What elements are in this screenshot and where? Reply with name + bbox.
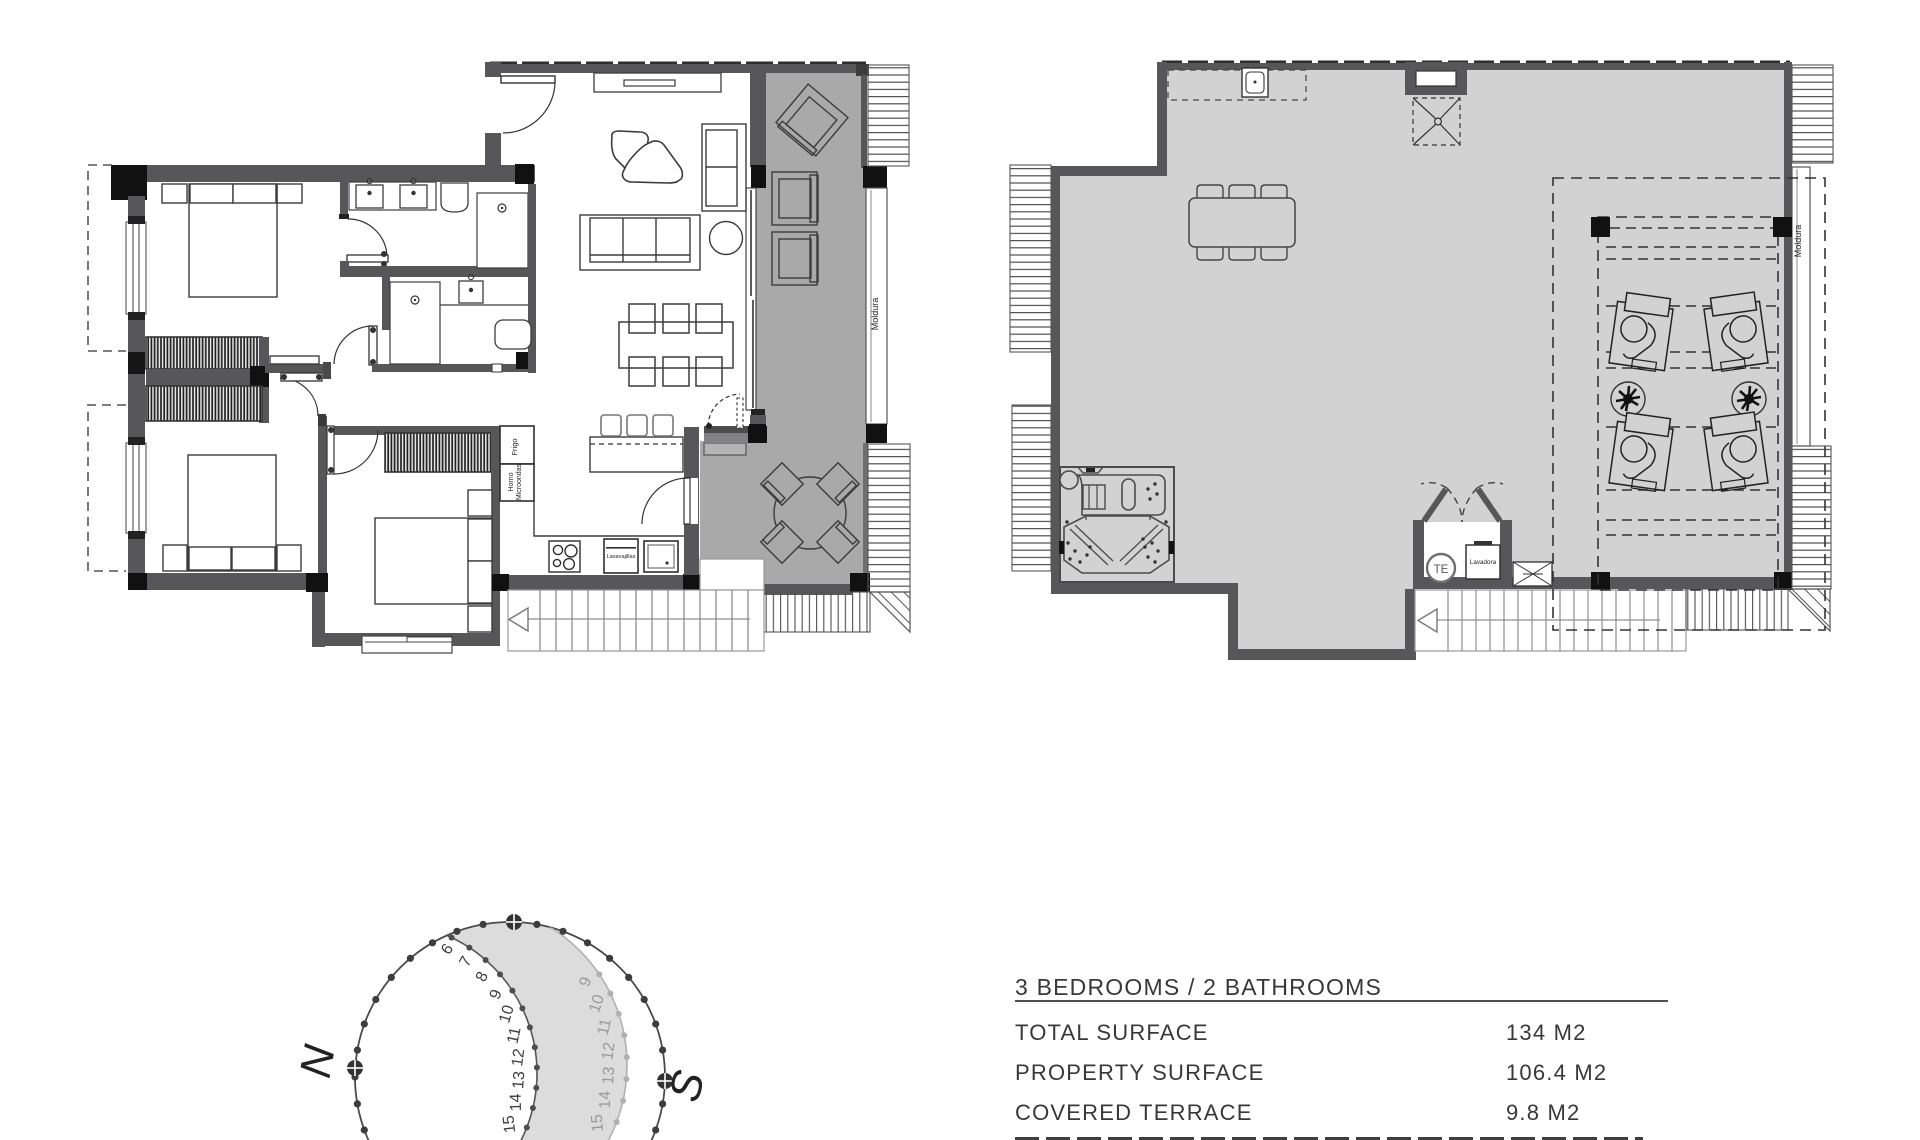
svg-text:TE: TE	[1434, 564, 1449, 576]
svg-text:9.8 M2: 9.8 M2	[1506, 1100, 1580, 1125]
svg-text:Moldura: Moldura	[1793, 225, 1803, 258]
svg-text:15: 15	[500, 1114, 519, 1134]
svg-text:13: 13	[600, 1066, 618, 1085]
svg-text:COVERED TERRACE: COVERED TERRACE	[1015, 1100, 1253, 1125]
svg-text:Microondas: Microondas	[516, 463, 523, 500]
svg-text:3 BEDROOMS / 2 BATHROOMS: 3 BEDROOMS / 2 BATHROOMS	[1015, 974, 1382, 1000]
svg-text:15: 15	[589, 1113, 607, 1132]
svg-text:Moldura: Moldura	[870, 298, 880, 331]
svg-text:Lavavajillas: Lavavajillas	[607, 554, 636, 560]
svg-text:Lavadora: Lavadora	[1470, 559, 1497, 566]
svg-text:106.4 M2: 106.4 M2	[1506, 1060, 1607, 1085]
svg-text:13: 13	[510, 1071, 528, 1090]
svg-text:PROPERTY SURFACE: PROPERTY SURFACE	[1015, 1060, 1264, 1085]
svg-text:Horno: Horno	[508, 472, 515, 491]
svg-text:14: 14	[597, 1091, 614, 1109]
svg-text:TOTAL SURFACE: TOTAL SURFACE	[1015, 1020, 1209, 1045]
svg-text:14: 14	[508, 1093, 525, 1111]
svg-text:134 M2: 134 M2	[1506, 1020, 1587, 1045]
svg-text:Frigo: Frigo	[510, 438, 519, 455]
svg-text:12: 12	[599, 1041, 618, 1061]
svg-text:12: 12	[509, 1047, 528, 1067]
